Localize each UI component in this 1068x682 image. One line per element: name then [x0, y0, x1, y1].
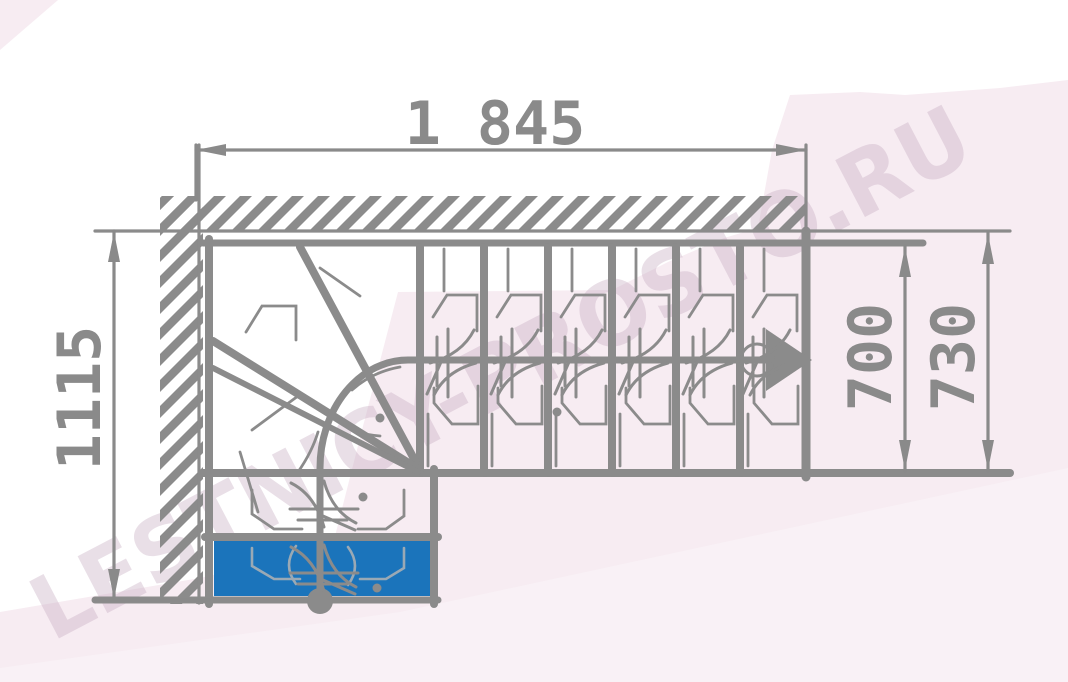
- staircase-plan-page: LESTNICY-PROSTO.RU: [0, 0, 1068, 682]
- underlay-dot: [373, 584, 382, 593]
- dimension-flight-width-inner-value: 700: [836, 303, 906, 411]
- dimension-left-depth-value: 1115: [45, 326, 115, 471]
- staircase-plan-drawing: LESTNICY-PROSTO.RU: [0, 0, 1068, 682]
- top-wall-hatch: [160, 196, 806, 232]
- dimension-top-width-value: 1 845: [405, 89, 586, 159]
- left-wall-hatch: [160, 196, 203, 604]
- dimension-flight-width-outer-value: 730: [919, 303, 989, 411]
- walk-line-start-dot: [307, 588, 333, 614]
